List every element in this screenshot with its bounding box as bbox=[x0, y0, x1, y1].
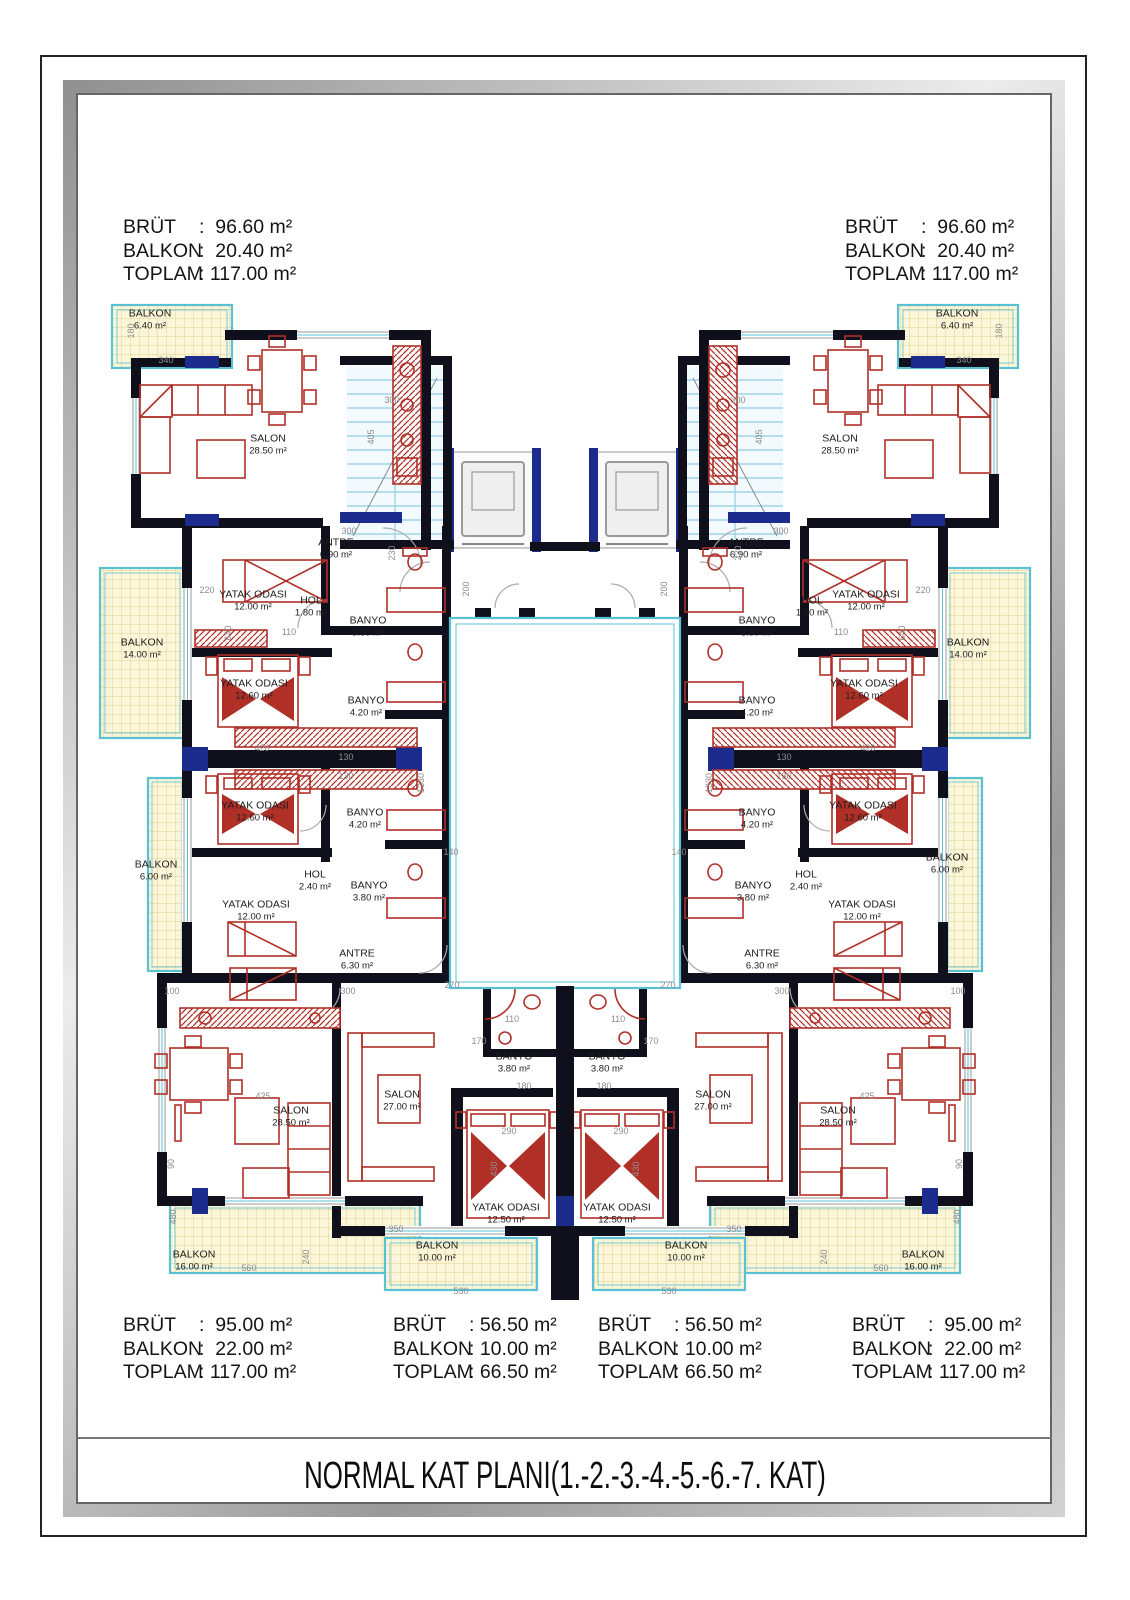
area-value: : 117.00 m² bbox=[928, 1361, 1025, 1385]
area-value: : 22.00 m² bbox=[928, 1338, 1021, 1362]
area-value: : 96.60 m² bbox=[921, 216, 1014, 240]
area-label: BALKON bbox=[852, 1338, 928, 1362]
area-label: BRÜT bbox=[123, 1314, 199, 1338]
area-table-bottom-left: BRÜT: 95.00 m² BALKON: 22.00 m² TOPLAM: … bbox=[123, 1314, 296, 1385]
plan-title: NORMAL KAT PLANI(1.-2.-3.-4.-5.-6.-7. KA… bbox=[234, 1446, 896, 1508]
area-value: : 56.50 m² bbox=[469, 1314, 557, 1338]
area-value: : 20.40 m² bbox=[921, 240, 1014, 264]
area-table-top-left: BRÜT: 96.60 m² BALKON: 20.40 m² TOPLAM: … bbox=[123, 216, 296, 287]
area-table-bottom-center-right: BRÜT: 56.50 m² BALKON: 10.00 m² TOPLAM: … bbox=[598, 1314, 762, 1385]
area-value: : 22.00 m² bbox=[199, 1338, 292, 1362]
area-table-bottom-center-left: BRÜT: 56.50 m² BALKON: 10.00 m² TOPLAM: … bbox=[393, 1314, 557, 1385]
area-value: : 56.50 m² bbox=[674, 1314, 762, 1338]
area-label: TOPLAM bbox=[123, 1361, 199, 1385]
area-label: BALKON bbox=[845, 240, 921, 264]
area-value: : 95.00 m² bbox=[928, 1314, 1021, 1338]
area-value: : 20.40 m² bbox=[199, 240, 292, 264]
area-value: : 10.00 m² bbox=[469, 1338, 557, 1362]
area-value: : 10.00 m² bbox=[674, 1338, 762, 1362]
area-value: : 117.00 m² bbox=[199, 263, 296, 287]
area-label: TOPLAM bbox=[845, 263, 921, 287]
area-table-bottom-right: BRÜT: 95.00 m² BALKON: 22.00 m² TOPLAM: … bbox=[852, 1314, 1025, 1385]
area-value: : 117.00 m² bbox=[199, 1361, 296, 1385]
area-label: BALKON bbox=[393, 1338, 469, 1362]
area-label: TOPLAM bbox=[598, 1361, 674, 1385]
area-label: BRÜT bbox=[393, 1314, 469, 1338]
area-value: : 66.50 m² bbox=[469, 1361, 557, 1385]
area-value: : 96.60 m² bbox=[199, 216, 292, 240]
title-separator-line bbox=[78, 1437, 1052, 1439]
area-label: BALKON bbox=[123, 1338, 199, 1362]
area-label: BALKON bbox=[598, 1338, 674, 1362]
area-label: BALKON bbox=[123, 240, 199, 264]
area-label: BRÜT bbox=[123, 216, 199, 240]
area-table-top-right: BRÜT: 96.60 m² BALKON: 20.40 m² TOPLAM: … bbox=[845, 216, 1018, 287]
area-label: BRÜT bbox=[845, 216, 921, 240]
area-value: : 95.00 m² bbox=[199, 1314, 292, 1338]
area-value: : 117.00 m² bbox=[921, 263, 1018, 287]
area-label: TOPLAM bbox=[852, 1361, 928, 1385]
area-label: TOPLAM bbox=[123, 263, 199, 287]
area-value: : 66.50 m² bbox=[674, 1361, 762, 1385]
area-label: BRÜT bbox=[852, 1314, 928, 1338]
blueprint-page: BALKON6.40 m²SALON28.50 m²ANTRE6.90 m²YA… bbox=[0, 0, 1130, 1600]
courtyard bbox=[450, 618, 680, 988]
floor-plan-drawing bbox=[85, 300, 1045, 1300]
area-label: BRÜT bbox=[598, 1314, 674, 1338]
area-label: TOPLAM bbox=[393, 1361, 469, 1385]
